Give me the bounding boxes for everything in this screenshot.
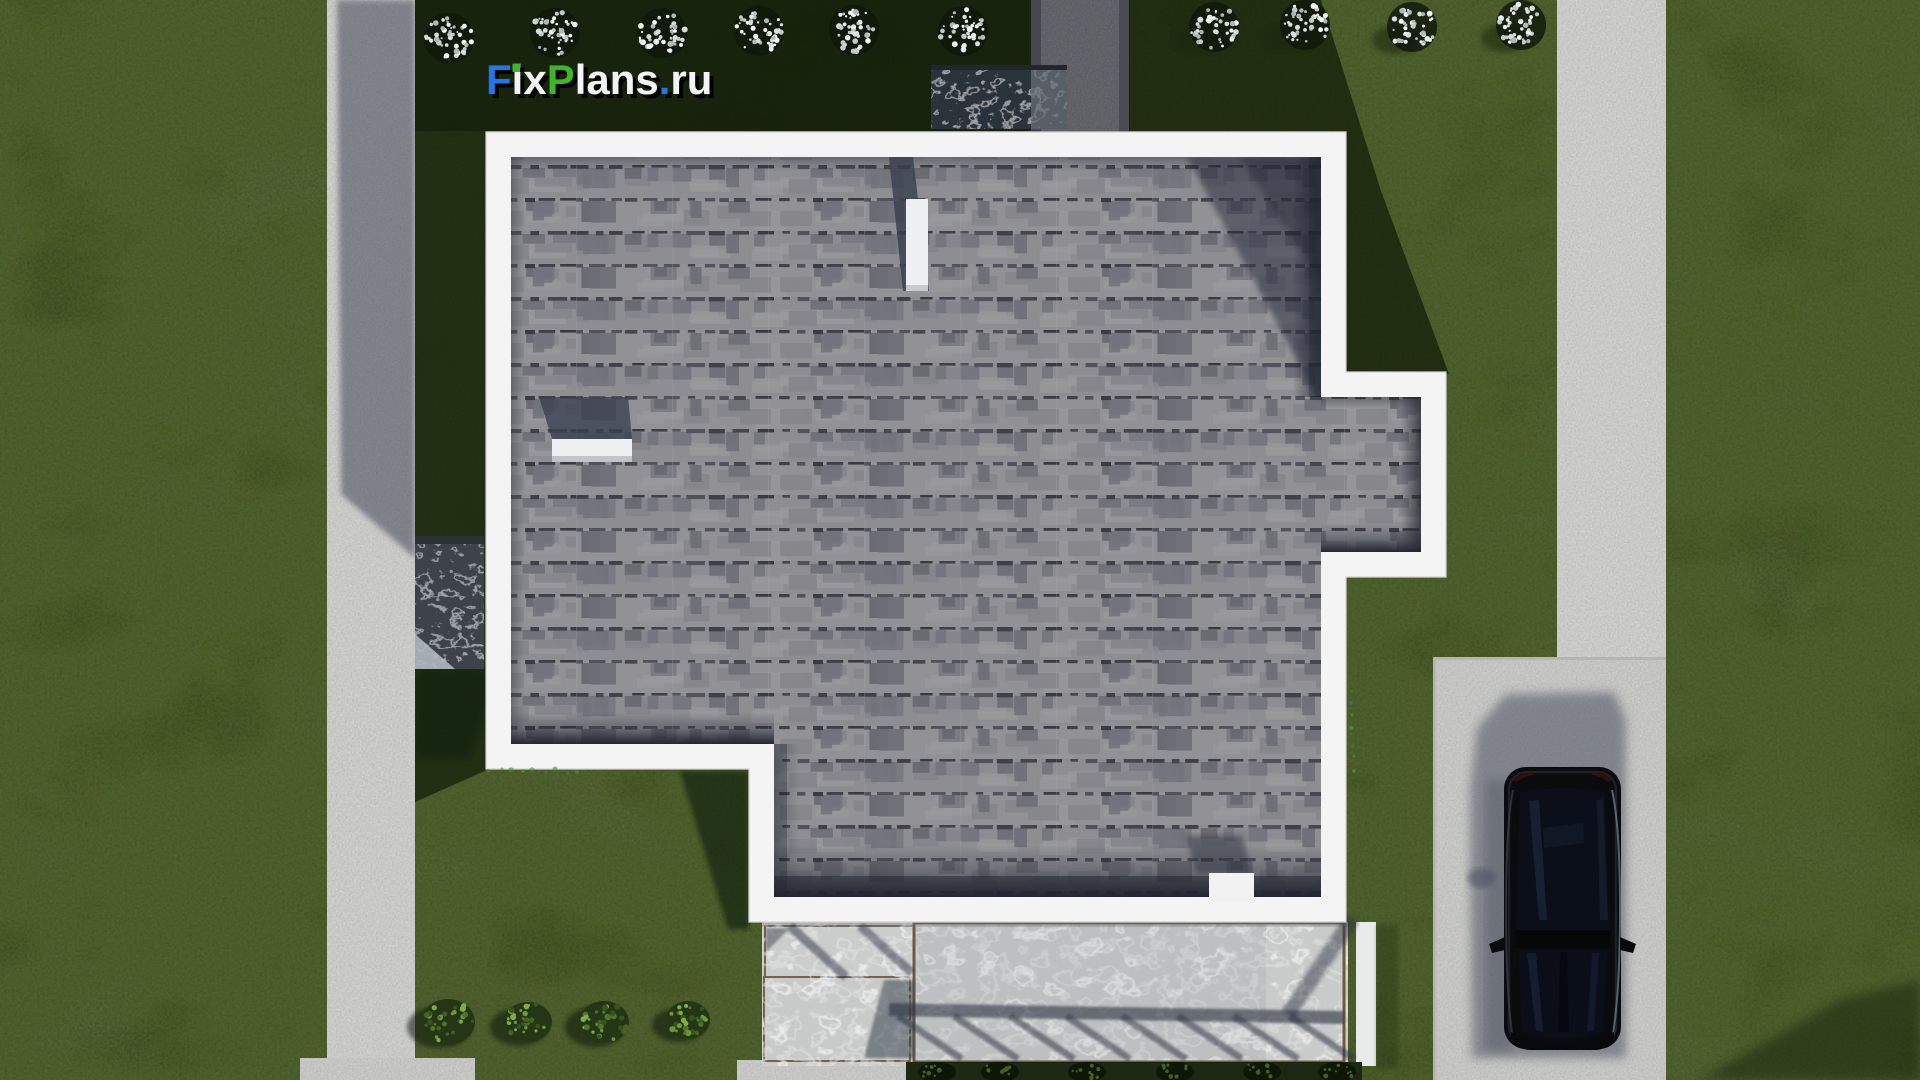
svg-text:FixPlans.ru: FixPlans.ru [486, 56, 712, 103]
